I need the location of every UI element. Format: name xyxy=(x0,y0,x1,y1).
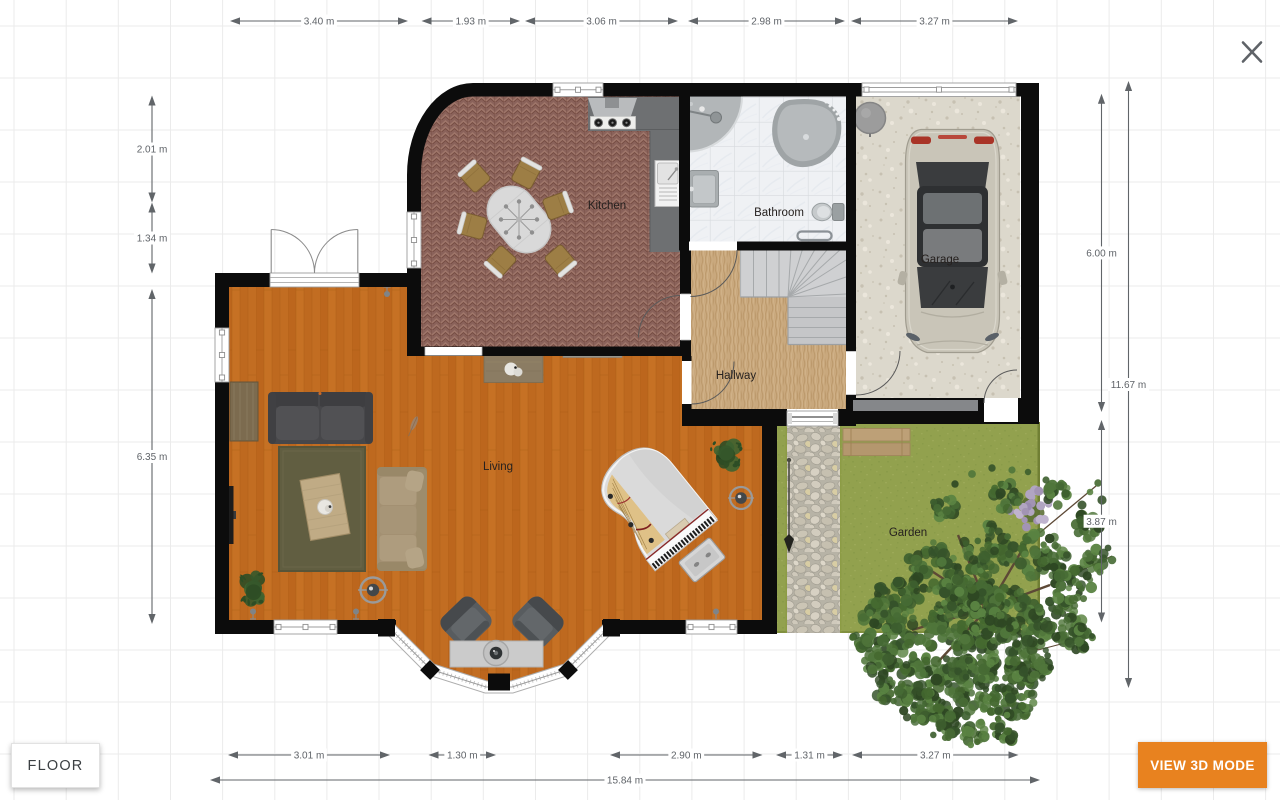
svg-text:Kitchen: Kitchen xyxy=(588,200,626,212)
svg-text:1.30 m: 1.30 m xyxy=(447,751,478,762)
svg-text:1.31 m: 1.31 m xyxy=(794,751,825,762)
svg-text:3.01 m: 3.01 m xyxy=(294,751,325,762)
svg-text:1.93 m: 1.93 m xyxy=(455,17,486,28)
svg-text:1.34 m: 1.34 m xyxy=(137,234,168,245)
svg-text:15.84 m: 15.84 m xyxy=(607,776,643,787)
svg-text:Garage: Garage xyxy=(921,254,959,266)
svg-text:3.27 m: 3.27 m xyxy=(920,751,951,762)
svg-text:2.01 m: 2.01 m xyxy=(137,145,168,156)
svg-text:2.98 m: 2.98 m xyxy=(751,17,782,28)
svg-text:Hallway: Hallway xyxy=(716,370,757,382)
svg-text:3.87 m: 3.87 m xyxy=(1086,517,1117,528)
svg-text:Bathroom: Bathroom xyxy=(754,207,804,219)
svg-text:11.67 m: 11.67 m xyxy=(1111,380,1146,391)
svg-text:3.27 m: 3.27 m xyxy=(919,17,950,28)
svg-text:6.35 m: 6.35 m xyxy=(137,452,168,463)
svg-text:6.00 m: 6.00 m xyxy=(1086,248,1117,259)
svg-text:2.90 m: 2.90 m xyxy=(671,751,702,762)
svg-text:Living: Living xyxy=(483,461,513,473)
svg-text:Garden: Garden xyxy=(889,527,927,539)
svg-text:3.40 m: 3.40 m xyxy=(304,17,335,28)
svg-text:3.06 m: 3.06 m xyxy=(586,17,617,28)
